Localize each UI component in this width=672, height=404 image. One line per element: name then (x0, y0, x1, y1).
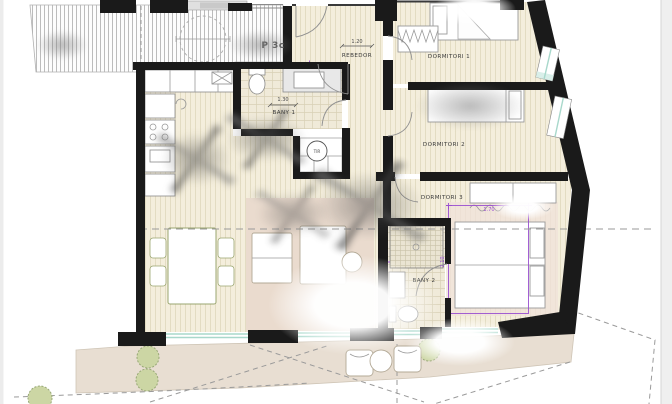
pillow (530, 266, 544, 296)
label-bany-1: BANY 1 (272, 110, 295, 116)
tir-closet (300, 138, 342, 172)
label-bany-2: BANY 2 (412, 278, 435, 284)
floor-plan-screenshot: P 3c REBEDOR DORMITORI 1 DORMITORI 2 DOR… (0, 0, 672, 404)
bush (137, 346, 159, 368)
stove (145, 120, 175, 144)
toilet (398, 306, 418, 322)
dormitori-3-furniture (455, 183, 556, 308)
label-dormitori-2: DORMITORI 2 (423, 142, 465, 148)
label-dormitori-3: DORMITORI 3 (421, 195, 463, 201)
terrace-table (370, 350, 392, 372)
sink (389, 272, 405, 298)
unit-label: P 3c (261, 41, 284, 51)
wardrobe (398, 26, 438, 52)
left-edge-strip (0, 0, 4, 404)
label-tir: TIR (313, 149, 321, 154)
sink (294, 72, 324, 88)
shower (390, 226, 443, 268)
dining-table (168, 228, 216, 304)
dim-dorm3-width: 1.70 (483, 207, 494, 213)
dim-bany1: 1.30 (277, 97, 288, 103)
label-rebedor: REBEDOR (342, 53, 372, 59)
floor-plan: P 3c REBEDOR DORMITORI 1 DORMITORI 2 DOR… (0, 0, 672, 404)
label-dormitori-1: DORMITORI 1 (428, 54, 470, 60)
sofa (300, 226, 346, 284)
dim-rebedor: 1.20 (351, 39, 362, 45)
pillow (530, 228, 544, 258)
dormitori-2-furniture (428, 88, 524, 122)
dim-dorm3-depth: 2.10 (440, 256, 446, 267)
terrace-armchairs (346, 346, 421, 376)
bush (136, 369, 158, 391)
toilet (249, 74, 265, 94)
coffee-table (342, 252, 362, 272)
pillow (509, 91, 521, 119)
right-edge-strip (661, 0, 672, 404)
